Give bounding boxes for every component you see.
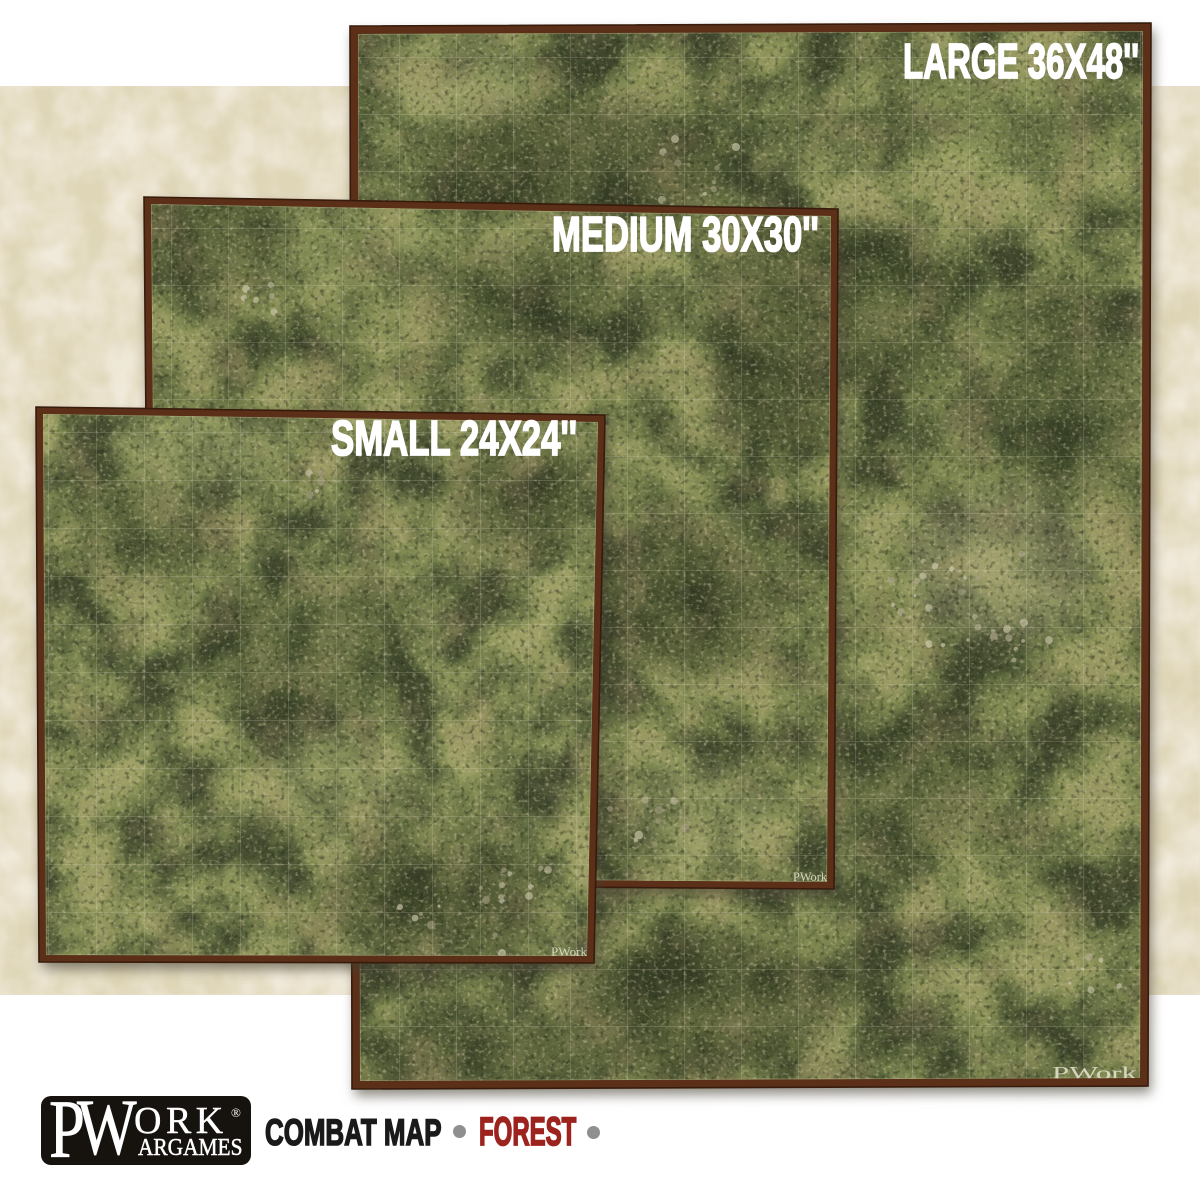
svg-text:PWork: PWork xyxy=(793,869,827,884)
